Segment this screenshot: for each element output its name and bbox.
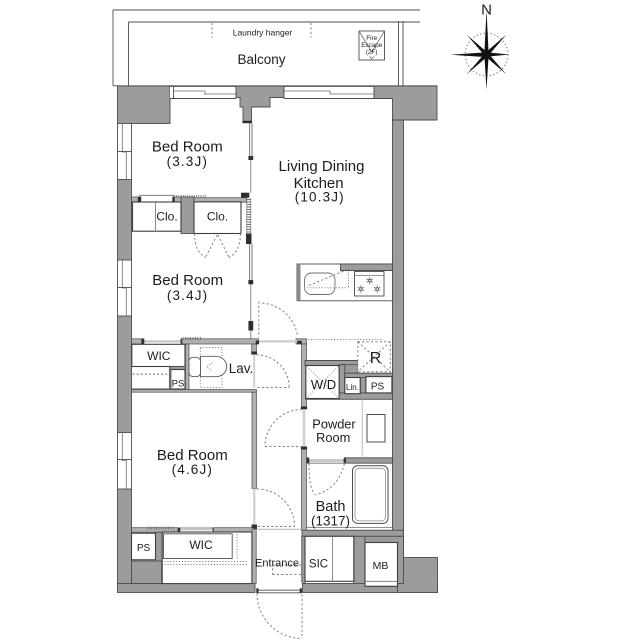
svg-text:Living Dining: Living Dining [279,158,365,175]
svg-text:SIC: SIC [309,559,328,571]
svg-text:(10.3J): (10.3J) [295,190,345,205]
svg-text:PS: PS [371,382,385,393]
svg-text:(3.3J): (3.3J) [167,154,208,169]
svg-text:Laundry hanger: Laundry hanger [233,28,293,38]
svg-text:Room: Room [316,430,350,445]
svg-text:R: R [370,350,382,367]
svg-text:Bath: Bath [316,499,346,515]
svg-text:Fire: Fire [366,35,377,42]
svg-text:Bed Room: Bed Room [152,139,223,156]
svg-text:PS: PS [172,379,185,390]
svg-text:Lin.: Lin. [346,383,359,392]
svg-text:MB: MB [373,560,389,572]
svg-text:W/D: W/D [311,377,336,392]
svg-text:N: N [481,2,492,19]
svg-text:Entrance: Entrance [255,558,299,570]
svg-text:Lav.: Lav. [229,361,254,376]
svg-text:WIC: WIC [147,349,171,363]
svg-text:Bed Room: Bed Room [152,272,223,289]
svg-text:Escape: Escape [361,42,383,49]
svg-text:(3.4J): (3.4J) [167,288,208,303]
svg-text:(1317): (1317) [311,514,350,529]
svg-text:PS: PS [137,543,151,554]
svg-text:Clo.: Clo. [207,210,228,224]
svg-text:(4.6J): (4.6J) [172,462,213,477]
svg-text:Balcony: Balcony [237,52,285,67]
svg-text:(2F): (2F) [366,49,378,56]
svg-text:WIC: WIC [189,538,213,552]
svg-text:Clo.: Clo. [156,210,177,224]
